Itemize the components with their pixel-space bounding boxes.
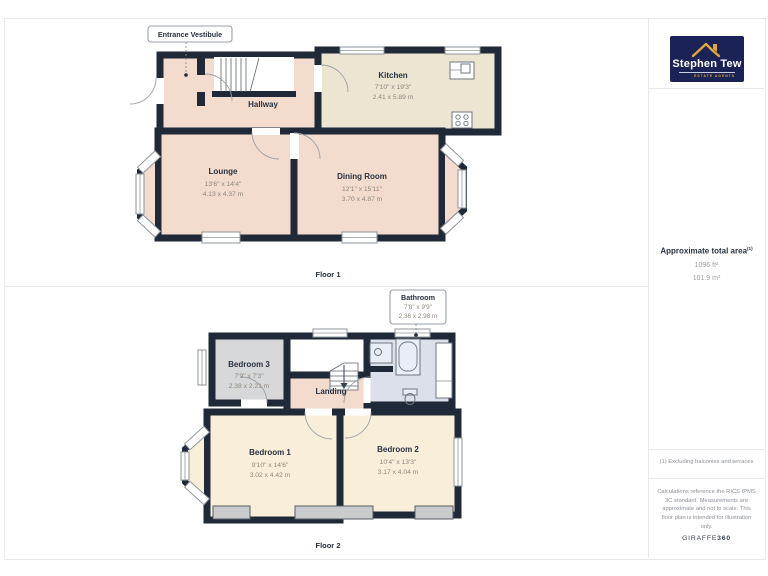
kitchen-dims-ft: 7'10" x 19'3" (375, 84, 412, 91)
total-area-title: Approximate total area(1) (649, 246, 764, 256)
disclaimer-text: Calculations reference the RICS IPMS 3C … (656, 488, 757, 531)
logo-name: Stephen Tew (672, 59, 741, 70)
callout-anchor-dot (414, 333, 418, 337)
bedroom1-dims-ft: 9'10" x 14'6" (252, 462, 289, 469)
total-area-footnote-ref: (1) (747, 246, 753, 251)
bedroom3-dims-m: 2.38 x 2.21 m (229, 383, 270, 390)
sidebar-divider (648, 18, 649, 558)
bathtub (396, 339, 420, 375)
bedroom1-dims-m: 3.02 x 4.42 m (250, 472, 291, 479)
giraffe360-brand: GIRAFFE360 (649, 535, 764, 542)
bedroom2-dims-ft: 10'4" x 13'3" (380, 459, 417, 466)
dining-dims-ft: 12'1" x 15'11" (342, 186, 383, 193)
total-area-imperial: 1096 ft² (649, 262, 764, 269)
total-area-metric: 101.9 m² (649, 275, 764, 282)
kitchen-dims-m: 2.41 x 5.89 m (373, 94, 414, 101)
stairs-floor1 (212, 57, 296, 97)
agency-logo: Stephen Tew ESTATE AGENTS (670, 36, 744, 82)
floor1-label: Floor 1 (315, 270, 340, 279)
lounge-label: Lounge (209, 167, 238, 176)
bathroom-dims-ft: 7'8" x 9'9" (404, 304, 432, 311)
room-bedroom3 (212, 336, 287, 403)
footnote-text: (1) Excluding balconies and terraces (649, 459, 764, 465)
floor2-label: Floor 2 (315, 541, 340, 550)
kitchen-hob (452, 112, 472, 128)
floorplan-page: Entrance Vestibule Hallway Kitchen 7'10"… (0, 0, 768, 576)
kitchen-sink (450, 62, 474, 79)
bathroom-cabinet (436, 343, 452, 398)
lounge-dims-ft: 13'6" x 14'4" (205, 181, 242, 188)
room-dining (294, 131, 442, 238)
vestibule-wall (197, 55, 205, 75)
kitchen-label: Kitchen (378, 71, 407, 80)
bathroom-label: Bathroom (401, 293, 435, 302)
dining-dims-m: 3.70 x 4.87 m (342, 196, 383, 203)
vestibule-wall (197, 92, 205, 106)
bathroom-wall-stub (367, 366, 393, 372)
lounge-dims-m: 4.13 x 4.37 m (203, 191, 244, 198)
dining-label: Dining Room (337, 172, 387, 181)
floor1-plan: Entrance Vestibule Hallway Kitchen 7'10"… (4, 18, 648, 286)
bathroom-dims-m: 2.36 x 2.98 m (399, 313, 438, 320)
bedroom1-label: Bedroom 1 (249, 448, 291, 457)
bedroom3-dims-ft: 7'9" x 7'3" (234, 373, 264, 380)
sidebar-divider-logo (649, 88, 764, 89)
bedroom2-label: Bedroom 2 (377, 445, 419, 454)
logo-tagline: ESTATE AGENTS (694, 73, 735, 78)
toilet (403, 389, 417, 395)
bedroom2-dims-m: 3.17 x 4.04 m (378, 469, 419, 476)
sidebar-divider-disclaimer (649, 478, 764, 479)
hallway-label: Hallway (248, 100, 278, 109)
roof-icon (687, 41, 727, 58)
total-area-block: Approximate total area(1) 1096 ft² 101.9… (649, 246, 764, 282)
callout-anchor-dot (184, 73, 188, 77)
bedroom3-label: Bedroom 3 (228, 360, 270, 369)
sidebar-divider-note (649, 449, 764, 450)
floor2-plan: Bathroom 7'8" x 9'9" 2.36 x 2.98 m Bedro… (4, 286, 648, 558)
landing-label: Landing (315, 387, 346, 396)
entrance-vestibule-label: Entrance Vestibule (158, 30, 222, 39)
